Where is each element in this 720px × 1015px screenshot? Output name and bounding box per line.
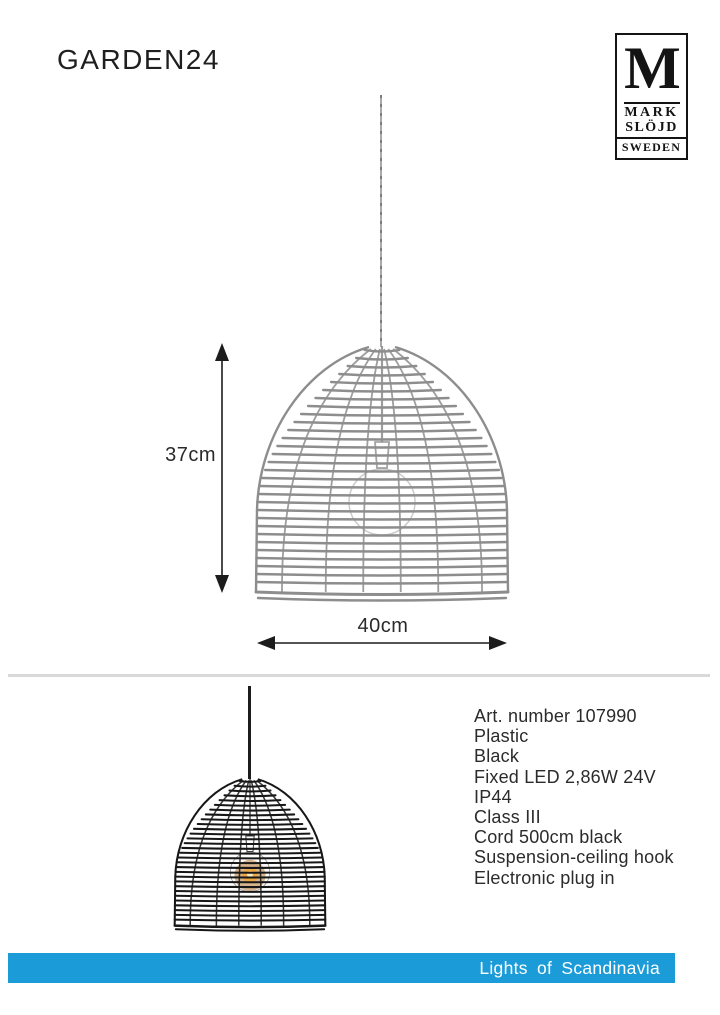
width-dimension-arrow: [256, 632, 508, 654]
page-title: GARDEN24: [57, 44, 220, 76]
spec-line-color: Black: [474, 746, 674, 766]
spec-line-ip-rating: IP44: [474, 787, 674, 807]
spec-line-art-number: Art. number 107990: [474, 706, 674, 726]
lamp-product-photo: [172, 775, 328, 934]
spec-line-material: Plastic: [474, 726, 674, 746]
logo-divider-line: [624, 102, 680, 104]
lamp-line-drawing: [252, 340, 512, 606]
pendant-cord-drawing: [380, 95, 382, 347]
spec-list: Art. number 107990 Plastic Black Fixed L…: [474, 706, 674, 888]
pendant-cord-photo: [248, 686, 251, 779]
brand-logo: M MARK SLÖJD SWEDEN: [615, 33, 688, 160]
brand-name-line1: MARK: [624, 105, 678, 120]
height-dimension-arrow: [210, 342, 234, 594]
spec-line-plug: Electronic plug in: [474, 868, 674, 888]
brand-name-line2: SLÖJD: [625, 120, 678, 135]
spec-line-class: Class III: [474, 807, 674, 827]
spec-sheet-page: { "title": "GARDEN24", "logo": { "monogr…: [0, 0, 720, 1015]
brand-country: SWEDEN: [617, 137, 686, 155]
spec-line-suspension: Suspension-ceiling hook: [474, 847, 674, 867]
spec-line-light-source: Fixed LED 2,86W 24V: [474, 767, 674, 787]
height-dimension-label: 37cm: [158, 444, 216, 467]
section-divider: [8, 674, 710, 677]
spec-line-cord: Cord 500cm black: [474, 827, 674, 847]
footer-slogan: Lights of Scandinavia: [479, 958, 660, 978]
brand-monogram: M: [624, 35, 679, 101]
footer-bar: Lights of Scandinavia: [8, 953, 675, 983]
